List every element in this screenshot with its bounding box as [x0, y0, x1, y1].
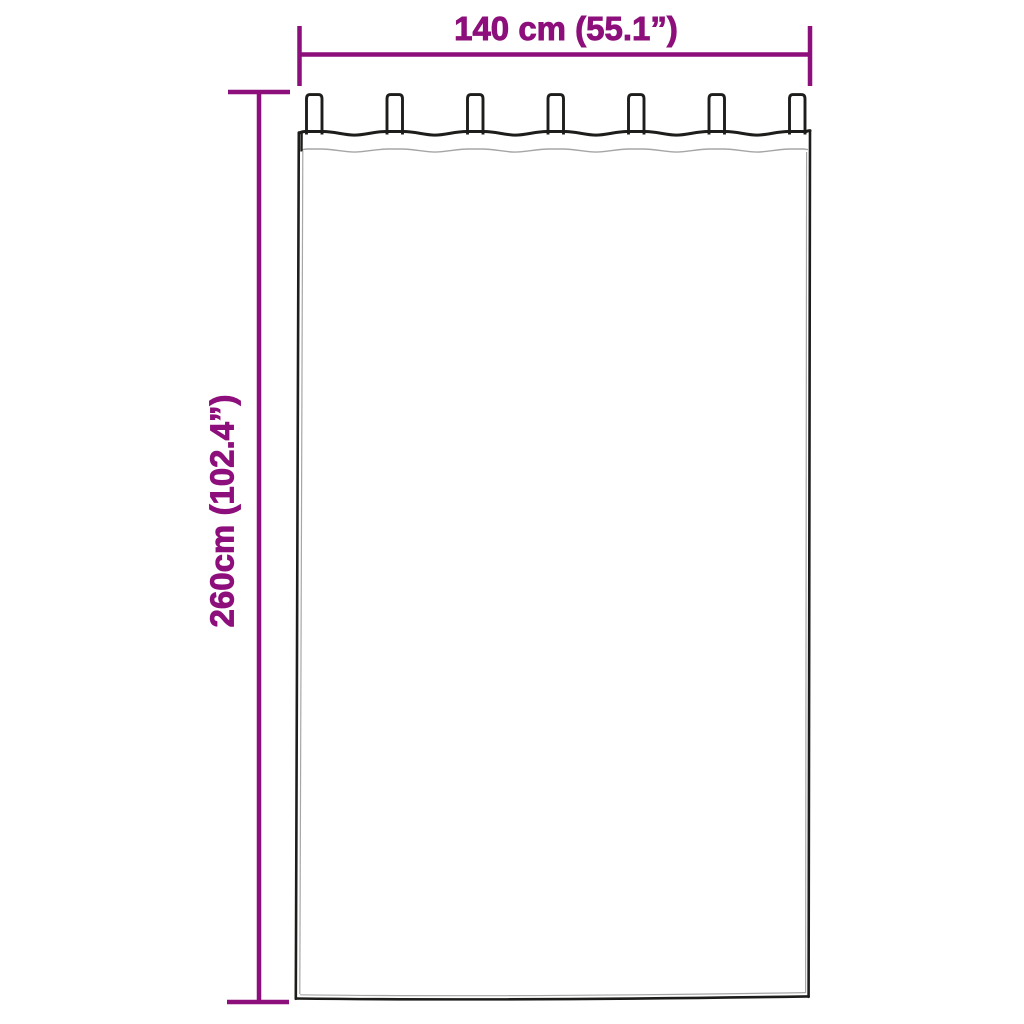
- svg-text:260cm (102.4”): 260cm (102.4”): [204, 395, 241, 628]
- svg-text:140 cm (55.1”): 140 cm (55.1”): [454, 10, 678, 47]
